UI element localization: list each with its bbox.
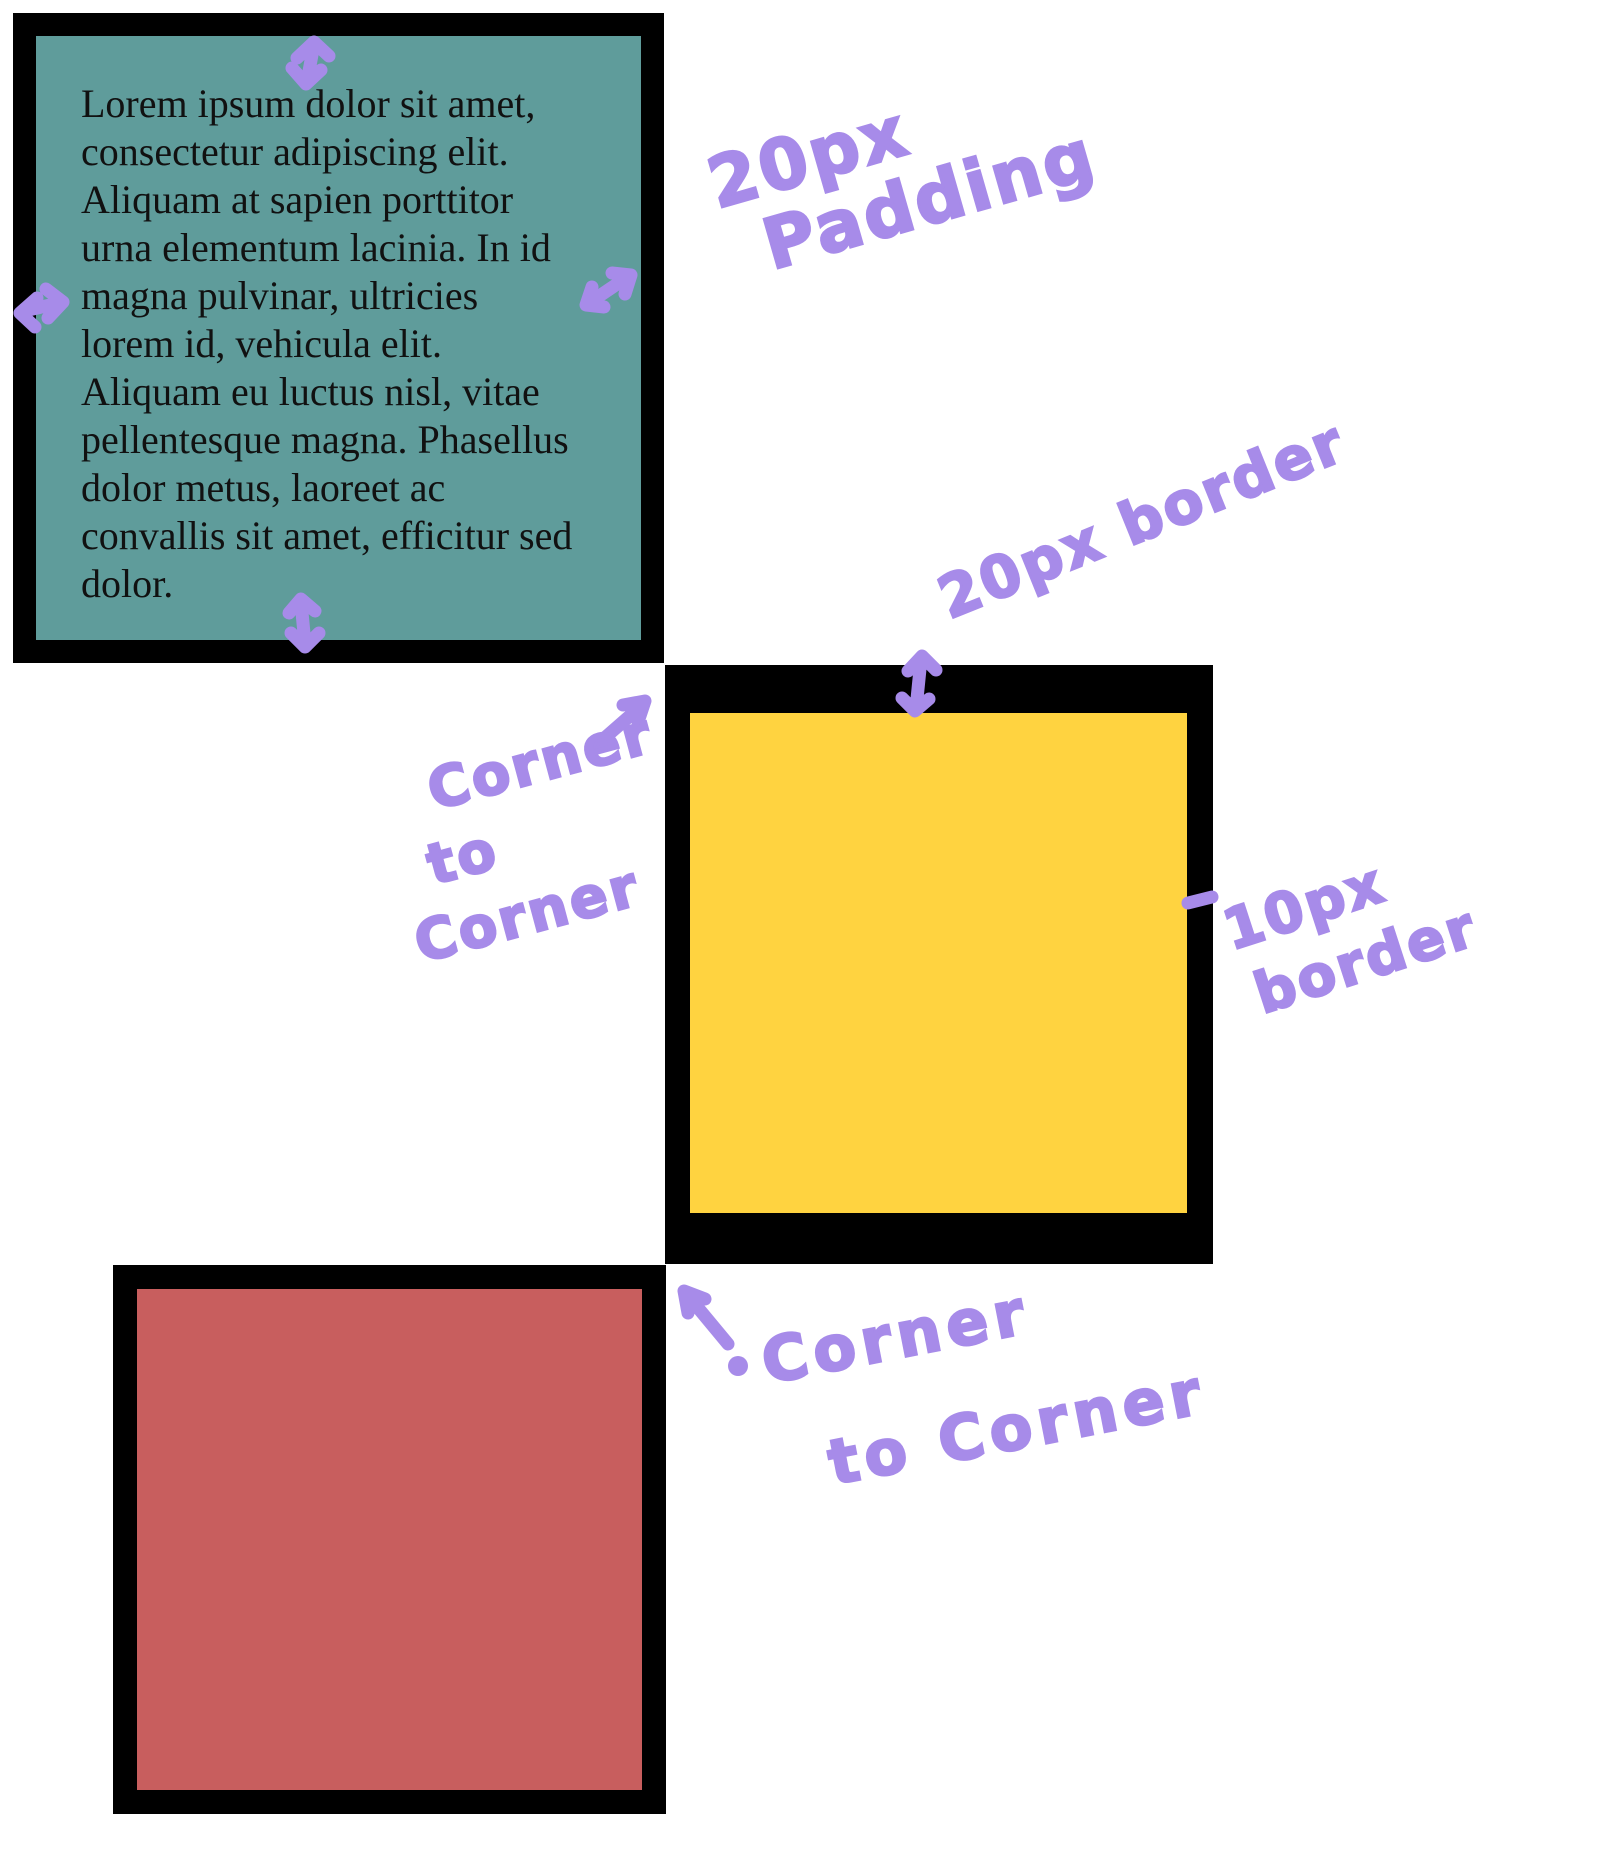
box-model-sketch-canvas: Lorem ipsum dolor sit amet, consectetur … (0, 0, 1622, 1866)
lorem-paragraph: Lorem ipsum dolor sit amet, consectetur … (81, 80, 596, 608)
lorem-line: Aliquam eu luctus nisl, vitae (81, 368, 596, 416)
corner-to-corner-arrow-2-icon (684, 1291, 728, 1344)
plain-demo-box (113, 1265, 666, 1814)
lorem-line: lorem id, vehicula elit. (81, 320, 596, 368)
lorem-line: consectetur adipiscing elit. (81, 128, 596, 176)
lorem-line: magna pulvinar, ultricies (81, 272, 596, 320)
padding-annotation: 20px Padding (700, 46, 1104, 292)
lorem-line: dolor metus, laoreet ac (81, 464, 596, 512)
border-20px-annotation-label: 20px border (930, 410, 1354, 629)
corner-to-corner-annotation-1: Corner to Corner (420, 698, 699, 966)
padding-demo-box: Lorem ipsum dolor sit amet, consectetur … (13, 13, 664, 663)
corner-to-corner-dot-icon (728, 1356, 748, 1376)
lorem-line: Lorem ipsum dolor sit amet, (81, 80, 596, 128)
lorem-line: dolor. (81, 560, 596, 608)
lorem-line: Aliquam at sapien porttitor (81, 176, 596, 224)
lorem-line: urna elementum lacinia. In id (81, 224, 596, 272)
border-10px-annotation: 10px border (1215, 826, 1486, 1033)
lorem-line: pellentesque magna. Phasellus (81, 416, 596, 464)
border-20px-annotation: 20px border (930, 410, 1354, 629)
border-demo-box (665, 665, 1213, 1264)
lorem-line: convallis sit amet, efficitur sed (81, 512, 596, 560)
corner-to-corner-annotation-2: Corner to Corner (752, 1226, 1216, 1528)
